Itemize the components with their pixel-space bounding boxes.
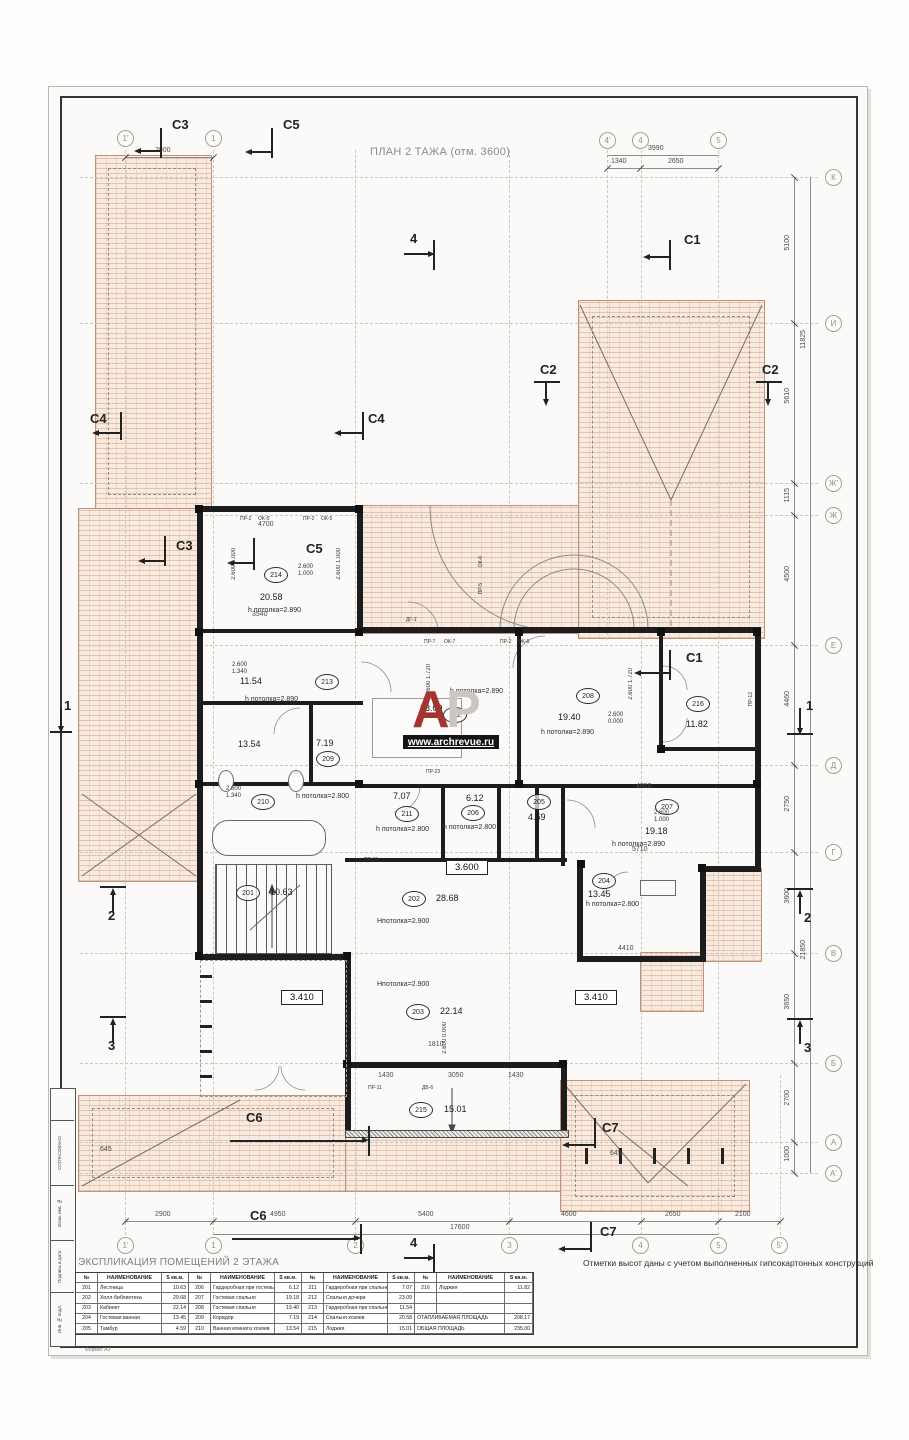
dim-value: 5100 bbox=[784, 235, 791, 251]
section-marker-c6: С6 bbox=[250, 1208, 267, 1223]
dim-value: 11825 bbox=[800, 330, 807, 349]
table-cell: Тамбур bbox=[98, 1324, 162, 1334]
opening-tag: ДБ-6 bbox=[422, 1085, 433, 1091]
table-cell: 11.82 bbox=[505, 1283, 533, 1293]
section-arrowhead bbox=[643, 254, 650, 260]
table-cell: 208 bbox=[189, 1304, 211, 1314]
dim-value: 3050 bbox=[448, 1072, 464, 1079]
table-cell: 205 bbox=[76, 1324, 98, 1334]
grid-bubble: В bbox=[825, 945, 842, 962]
room-number-204: 204 bbox=[592, 873, 616, 889]
room-area-201: 10.63 bbox=[270, 887, 293, 897]
table-cell: Гардеробная при спальне bbox=[324, 1304, 388, 1314]
column bbox=[515, 780, 523, 788]
stamp-label: СОГЛАСОВАНО bbox=[57, 1124, 67, 1182]
dim-value: 1340 bbox=[611, 158, 627, 165]
dim-line bbox=[607, 155, 718, 156]
room-height-208: h потолка=2.890 bbox=[541, 729, 594, 736]
wall-segment bbox=[497, 786, 501, 862]
room-number-208: 208 bbox=[576, 688, 600, 704]
grid-bubble: 1' bbox=[117, 1237, 134, 1254]
table-cell: № bbox=[302, 1273, 324, 1283]
level-mark-value: 2.600 bbox=[608, 712, 623, 719]
opening-tag: ДГ-1' bbox=[406, 617, 418, 623]
dim-value: 4410 bbox=[618, 945, 634, 952]
opening-tag: ОК-6 bbox=[478, 556, 484, 567]
dim-value: 2750 bbox=[784, 796, 791, 812]
section-arrow bbox=[140, 150, 160, 152]
room-height-204: h потолка=2.800 bbox=[586, 901, 639, 908]
stamp-divider bbox=[50, 1240, 74, 1241]
room-number-216: 216 bbox=[686, 696, 710, 712]
section-arrowhead bbox=[110, 888, 116, 895]
table-cell bbox=[415, 1304, 437, 1314]
table-cell: 206 bbox=[189, 1283, 211, 1293]
fence-post bbox=[653, 1148, 656, 1164]
room-number-209: 209 bbox=[316, 751, 340, 767]
section-arrow bbox=[98, 432, 120, 434]
grid-bubble: 5 bbox=[710, 132, 727, 149]
table-cell: S кв.м. bbox=[162, 1273, 189, 1283]
table-cell: 11.54 bbox=[388, 1304, 415, 1314]
table-cell: 13.54 bbox=[275, 1324, 302, 1334]
wall-segment bbox=[702, 866, 761, 872]
section-arrow bbox=[568, 1144, 594, 1146]
column bbox=[195, 505, 203, 513]
grid-bubble: 5 bbox=[710, 1237, 727, 1254]
dim-line bbox=[607, 168, 718, 169]
section-arrow bbox=[545, 383, 547, 399]
section-arrowhead bbox=[245, 149, 252, 155]
table-cell: 214 bbox=[302, 1314, 324, 1324]
sink-counter bbox=[640, 880, 676, 896]
section-flag bbox=[253, 538, 255, 570]
level-box-3600: 3.600 bbox=[446, 860, 488, 875]
column bbox=[698, 864, 706, 872]
level-mark-value: 1.000 bbox=[654, 817, 669, 824]
room-area-202: 28.68 bbox=[436, 893, 459, 903]
room-height-202: Нпотолка=2.900 bbox=[377, 918, 429, 925]
column bbox=[195, 952, 203, 960]
stamp-label: Инв. № подл. bbox=[57, 1295, 67, 1342]
level-mark-value: 2.600 bbox=[232, 662, 247, 669]
room-number-210: 210 bbox=[251, 794, 275, 810]
room-height-203: Нпотолка=2.900 bbox=[377, 981, 429, 988]
section-marker-c5: С5 bbox=[306, 541, 323, 556]
column bbox=[577, 860, 585, 868]
roof-area-left-band bbox=[78, 508, 202, 882]
format-label: Формат А3 bbox=[85, 1347, 110, 1353]
table-cell: Гардеробная при спальне bbox=[324, 1283, 388, 1293]
terrace-post bbox=[200, 1050, 212, 1053]
section-flag bbox=[433, 240, 435, 270]
table-cell: Холл-библиотека bbox=[98, 1293, 162, 1303]
grid-line bbox=[80, 1142, 818, 1143]
level-mark-value: 0.000 bbox=[608, 719, 623, 726]
column bbox=[195, 628, 203, 636]
section-marker-c5: С5 bbox=[283, 117, 300, 132]
dim-value: 4850 bbox=[636, 783, 652, 790]
column bbox=[515, 628, 523, 636]
stamp-divider bbox=[50, 1120, 74, 1121]
wall-segment bbox=[561, 786, 565, 866]
opening-tag: ОК-5' bbox=[258, 516, 270, 522]
terrace-post bbox=[200, 1025, 212, 1028]
dim-value: 2650 bbox=[668, 158, 684, 165]
section-marker-c6: С6 bbox=[246, 1110, 263, 1125]
level-mark-value: 2.600 bbox=[442, 1039, 448, 1054]
section-flag bbox=[50, 731, 72, 733]
column bbox=[753, 780, 761, 788]
section-marker-c1: С1 bbox=[684, 232, 701, 247]
section-arrow bbox=[767, 383, 769, 399]
grid-line bbox=[80, 515, 818, 516]
dim-value: 17600 bbox=[450, 1224, 469, 1231]
level-mark-value: 2.600 bbox=[298, 564, 313, 571]
level-box-3410: 3.410 bbox=[575, 990, 617, 1005]
room-number-214: 214 bbox=[264, 567, 288, 583]
table-cell: 7.07 bbox=[388, 1283, 415, 1293]
dim-value: 5400 bbox=[418, 1211, 434, 1218]
table-cell: 23.09 bbox=[388, 1293, 415, 1303]
table-cell: Гостевая ванная bbox=[98, 1314, 162, 1324]
level-mark-value: 0.000 bbox=[442, 1022, 448, 1037]
fence-post bbox=[585, 1148, 588, 1164]
roof-dashed-outline bbox=[575, 1095, 735, 1197]
column bbox=[355, 780, 363, 788]
wall-segment bbox=[659, 747, 759, 751]
dim-value: 2700 bbox=[784, 1090, 791, 1106]
table-cell: 235.00 bbox=[505, 1324, 533, 1334]
watermark-url: www.archrevue.ru bbox=[403, 735, 499, 749]
section-arrow bbox=[404, 253, 430, 255]
section-arrowhead bbox=[797, 890, 803, 897]
room-number-201: 201 bbox=[236, 885, 260, 901]
dim-value: 3990 bbox=[648, 145, 664, 152]
grid-line bbox=[607, 150, 608, 640]
grid-bubble: 4 bbox=[632, 1237, 649, 1254]
staircase bbox=[215, 864, 332, 954]
opening-tag: ОК-6 bbox=[518, 639, 529, 645]
grid-line bbox=[80, 953, 818, 954]
section-marker-4: 4 bbox=[410, 1235, 417, 1250]
grid-bubble: Г bbox=[825, 844, 842, 861]
table-cell: № bbox=[189, 1273, 211, 1283]
wall-segment bbox=[517, 631, 521, 786]
table-cell bbox=[415, 1293, 437, 1303]
level-mark-value: 1.340 bbox=[232, 669, 247, 676]
grid-line bbox=[80, 177, 818, 178]
section-marker-c3: С3 bbox=[172, 117, 189, 132]
section-flag bbox=[594, 1118, 596, 1148]
table-cell: НАИМЕНОВАНИЕ bbox=[98, 1273, 162, 1283]
wall-segment bbox=[580, 956, 706, 962]
table-cell: 4.59 bbox=[162, 1324, 189, 1334]
table-cell: 201 bbox=[76, 1283, 98, 1293]
wall-segment bbox=[561, 1062, 567, 1136]
room-area-208: 19.40 bbox=[558, 712, 581, 722]
table-cell: 216 bbox=[415, 1283, 437, 1293]
section-flag bbox=[669, 240, 671, 270]
table-cell: 19.18 bbox=[275, 1293, 302, 1303]
section-flag bbox=[787, 733, 813, 735]
stamp-divider bbox=[50, 1292, 74, 1293]
section-arrow bbox=[340, 432, 362, 434]
section-flag bbox=[362, 412, 364, 440]
table-cell: ОТАПЛИВАЕМАЯ ПЛОЩАДЬ bbox=[415, 1314, 505, 1324]
room-area-215: 15.01 bbox=[444, 1104, 467, 1114]
bathtub bbox=[212, 820, 326, 856]
section-flag bbox=[756, 381, 782, 383]
wall-segment bbox=[659, 631, 663, 751]
dim-value: 1430 bbox=[378, 1072, 394, 1079]
level-mark-value: 2.600 bbox=[226, 786, 241, 793]
room-number-205: 205 bbox=[527, 794, 551, 810]
dim-value: 2900 bbox=[155, 1211, 171, 1218]
room-area-210: 13.54 bbox=[238, 739, 261, 749]
table-cell: Ванная комната хозяев bbox=[211, 1324, 275, 1334]
section-arrowhead bbox=[562, 1142, 569, 1148]
table-cell: № bbox=[76, 1273, 98, 1283]
section-marker-4: 4 bbox=[410, 231, 417, 246]
room-area-209: 7.19 bbox=[316, 738, 334, 748]
level-mark: 2.6000.000 bbox=[608, 712, 623, 726]
grid-line bbox=[80, 1173, 818, 1174]
table-cell: 22.14 bbox=[162, 1304, 189, 1314]
table-cell bbox=[505, 1293, 533, 1303]
table-cell: № bbox=[415, 1273, 437, 1283]
section-flag bbox=[433, 1244, 435, 1274]
stamp-label: Подпись и дата bbox=[57, 1243, 67, 1290]
watermark-logo-letter-p: Р bbox=[446, 684, 481, 736]
section-marker-1: 1 bbox=[64, 698, 71, 713]
wall-segment bbox=[197, 506, 203, 788]
room-number-215: 215 bbox=[409, 1102, 433, 1118]
wall-segment bbox=[197, 782, 203, 960]
grid-line bbox=[641, 150, 642, 1235]
wall-segment bbox=[197, 629, 363, 633]
room-number-206: 206 bbox=[461, 805, 485, 821]
room-height-211: h потолка=2.800 bbox=[376, 826, 429, 833]
dim-value: 5610 bbox=[784, 388, 791, 404]
table-cell: НАИМЕНОВАНИЕ bbox=[324, 1273, 388, 1283]
table-cell: 10.63 bbox=[162, 1283, 189, 1293]
opening-tag: ПР-15 bbox=[364, 857, 378, 863]
toilet bbox=[288, 770, 304, 792]
room-number-203: 203 bbox=[406, 1004, 430, 1020]
table-cell: 213 bbox=[302, 1304, 324, 1314]
dim-value: 4460 bbox=[784, 691, 791, 707]
column bbox=[657, 628, 665, 636]
dim-value: 4500 bbox=[784, 566, 791, 582]
table-cell: S кв.м. bbox=[275, 1273, 302, 1283]
grid-bubble: Ж' bbox=[825, 475, 842, 492]
terrace-post bbox=[200, 1000, 212, 1003]
dim-line bbox=[125, 157, 213, 158]
level-mark-value: 1.340 bbox=[226, 793, 241, 800]
table-cell: 13.45 bbox=[162, 1314, 189, 1324]
room-area-214: 20.58 bbox=[260, 592, 283, 602]
dim-line bbox=[794, 177, 795, 1173]
grid-line bbox=[80, 852, 818, 853]
wall-segment bbox=[357, 627, 761, 633]
table-cell bbox=[437, 1304, 505, 1314]
room-area-207: 19.18 bbox=[645, 826, 668, 836]
grid-bubble: А' bbox=[825, 1165, 842, 1182]
column bbox=[355, 628, 363, 636]
level-mark: 2.600 1.000 bbox=[336, 548, 343, 580]
table-cell: 203 bbox=[76, 1304, 98, 1314]
table-cell: 215 bbox=[302, 1324, 324, 1334]
room-area-211: 7.07 bbox=[393, 791, 411, 801]
column bbox=[343, 952, 351, 960]
wall-segment bbox=[309, 703, 313, 786]
table-cell: 6.12 bbox=[275, 1283, 302, 1293]
column bbox=[657, 745, 665, 753]
column bbox=[355, 505, 363, 513]
drawing-sheet-page: СОГЛАСОВАНО Взам. инв. № Подпись и дата … bbox=[0, 0, 909, 1440]
grid-line bbox=[80, 765, 818, 766]
section-arrow bbox=[232, 1238, 358, 1240]
opening-tag: ПР-2 bbox=[303, 516, 314, 522]
fence-post bbox=[687, 1148, 690, 1164]
section-flag bbox=[360, 1224, 362, 1254]
terrace-post bbox=[200, 975, 212, 978]
table-cell: 19.40 bbox=[275, 1304, 302, 1314]
section-arrowhead bbox=[543, 399, 549, 406]
roof-dashed-outline bbox=[592, 316, 750, 618]
section-marker-c1: С1 bbox=[686, 650, 703, 665]
level-mark-value: 2.600 bbox=[336, 565, 342, 580]
terrace-outline bbox=[200, 960, 347, 1097]
section-arrowhead bbox=[765, 399, 771, 406]
column bbox=[559, 1060, 567, 1068]
section-flag bbox=[271, 128, 273, 158]
level-mark: 2.6001.000 bbox=[654, 810, 669, 824]
opening-tag: ПР-2 bbox=[500, 639, 511, 645]
section-arrowhead bbox=[797, 1020, 803, 1027]
table-cell: Коридор bbox=[211, 1314, 275, 1324]
grid-bubble: К bbox=[825, 169, 842, 186]
section-marker-c7: С7 bbox=[600, 1224, 617, 1239]
opening-tag: ОК-7 bbox=[444, 639, 455, 645]
level-mark-value: 2.600 bbox=[231, 565, 237, 580]
table-cell: 204 bbox=[76, 1314, 98, 1324]
dim-value: 2650 bbox=[665, 1211, 681, 1218]
table-cell: 208.17 bbox=[505, 1314, 533, 1324]
grid-line bbox=[355, 150, 356, 1235]
grid-line bbox=[780, 1075, 781, 1235]
grid-bubble: 1' bbox=[117, 130, 134, 147]
table-cell: 29.68 bbox=[162, 1293, 189, 1303]
room-area-213: 11.54 bbox=[240, 676, 262, 686]
table-cell: 210 bbox=[189, 1324, 211, 1334]
table-cell: Гостевая спальня bbox=[211, 1304, 275, 1314]
heights-note: Отметки высот даны с учетом выполненных … bbox=[583, 1258, 874, 1268]
table-cell: 7.19 bbox=[275, 1314, 302, 1324]
dim-value: 2100 bbox=[735, 1211, 751, 1218]
wall-segment bbox=[363, 784, 755, 788]
grid-bubble: Ж bbox=[825, 507, 842, 524]
section-flag bbox=[120, 412, 122, 440]
opening-tag: ПР-11 bbox=[368, 1085, 382, 1091]
dim-value: 3650 bbox=[784, 994, 791, 1010]
terrace-post bbox=[200, 1075, 212, 1078]
dim-value: 1430 bbox=[508, 1072, 524, 1079]
wall-segment bbox=[345, 1062, 567, 1068]
room-number-213: 213 bbox=[315, 674, 339, 690]
roof-area-under-loggia bbox=[345, 1130, 562, 1192]
table-cell: Лестница bbox=[98, 1283, 162, 1293]
table-cell: 212 bbox=[302, 1293, 324, 1303]
dim-value: 4950 bbox=[270, 1211, 286, 1218]
dim-line bbox=[125, 1221, 780, 1222]
wall-segment bbox=[357, 506, 363, 633]
section-marker-c2: С2 bbox=[540, 362, 557, 377]
room-area-205: 4.59 bbox=[528, 812, 546, 822]
table-cell: S кв.м. bbox=[505, 1273, 533, 1283]
section-flag bbox=[164, 536, 166, 566]
level-mark: 2.6001.000 bbox=[298, 564, 313, 578]
dim-line bbox=[810, 177, 811, 1173]
room-schedule-table: №НАИМЕНОВАНИЕS кв.м.№НАИМЕНОВАНИЕS кв.м.… bbox=[75, 1272, 534, 1335]
opening-tag: ПР-5 bbox=[478, 583, 484, 594]
level-mark: 2.6001.340 bbox=[232, 662, 247, 676]
grid-bubble: 3 bbox=[501, 1237, 518, 1254]
level-mark-value: 1.000 bbox=[298, 571, 313, 578]
stamp-divider bbox=[50, 1185, 74, 1186]
table-cell: 15.01 bbox=[388, 1324, 415, 1334]
grid-bubble: А bbox=[825, 1134, 842, 1151]
section-flag bbox=[368, 1126, 370, 1156]
section-arrow bbox=[230, 1140, 366, 1142]
grid-line bbox=[80, 323, 818, 324]
wall-segment bbox=[577, 860, 583, 962]
level-mark: 2.6001.340 bbox=[226, 786, 241, 800]
section-arrowhead bbox=[134, 148, 141, 154]
section-flag bbox=[590, 1222, 592, 1252]
wall-segment bbox=[197, 506, 363, 512]
grid-bubble: 5' bbox=[771, 1237, 788, 1254]
room-height-214: h потолка=2.890 bbox=[248, 607, 301, 614]
wall-segment bbox=[700, 866, 706, 962]
section-arrowhead bbox=[558, 1246, 565, 1252]
section-arrowhead bbox=[92, 430, 99, 436]
section-arrow bbox=[251, 151, 271, 153]
section-marker-c4: С4 bbox=[368, 411, 385, 426]
level-mark-value: 1.000 bbox=[336, 548, 342, 563]
grid-line bbox=[80, 483, 818, 484]
table-cell: НАИМЕНОВАНИЕ bbox=[437, 1273, 505, 1283]
section-marker-c7: С7 bbox=[602, 1120, 619, 1135]
room-height-207: h потолка=2.890 bbox=[612, 841, 665, 848]
dim-value: 645 bbox=[100, 1146, 112, 1153]
opening-tag: ОК-5 bbox=[321, 516, 332, 522]
grid-bubble: 4' bbox=[599, 132, 616, 149]
grid-bubble: Д bbox=[825, 757, 842, 774]
table-cell bbox=[505, 1304, 533, 1314]
table-cell: Гостевая спальня bbox=[211, 1293, 275, 1303]
room-number-211: 211 bbox=[395, 806, 419, 822]
section-arrowhead bbox=[334, 430, 341, 436]
room-height-206: h потолка=2.800 bbox=[443, 824, 496, 831]
roof-dashed-outline bbox=[108, 168, 196, 495]
level-mark: 2.600 1.000 bbox=[231, 548, 238, 580]
table-cell: Гардеробная при гостевых bbox=[211, 1283, 275, 1293]
table-cell: 202 bbox=[76, 1293, 98, 1303]
level-box-3410: 3.410 bbox=[281, 990, 323, 1005]
grid-bubble: И bbox=[825, 315, 842, 332]
